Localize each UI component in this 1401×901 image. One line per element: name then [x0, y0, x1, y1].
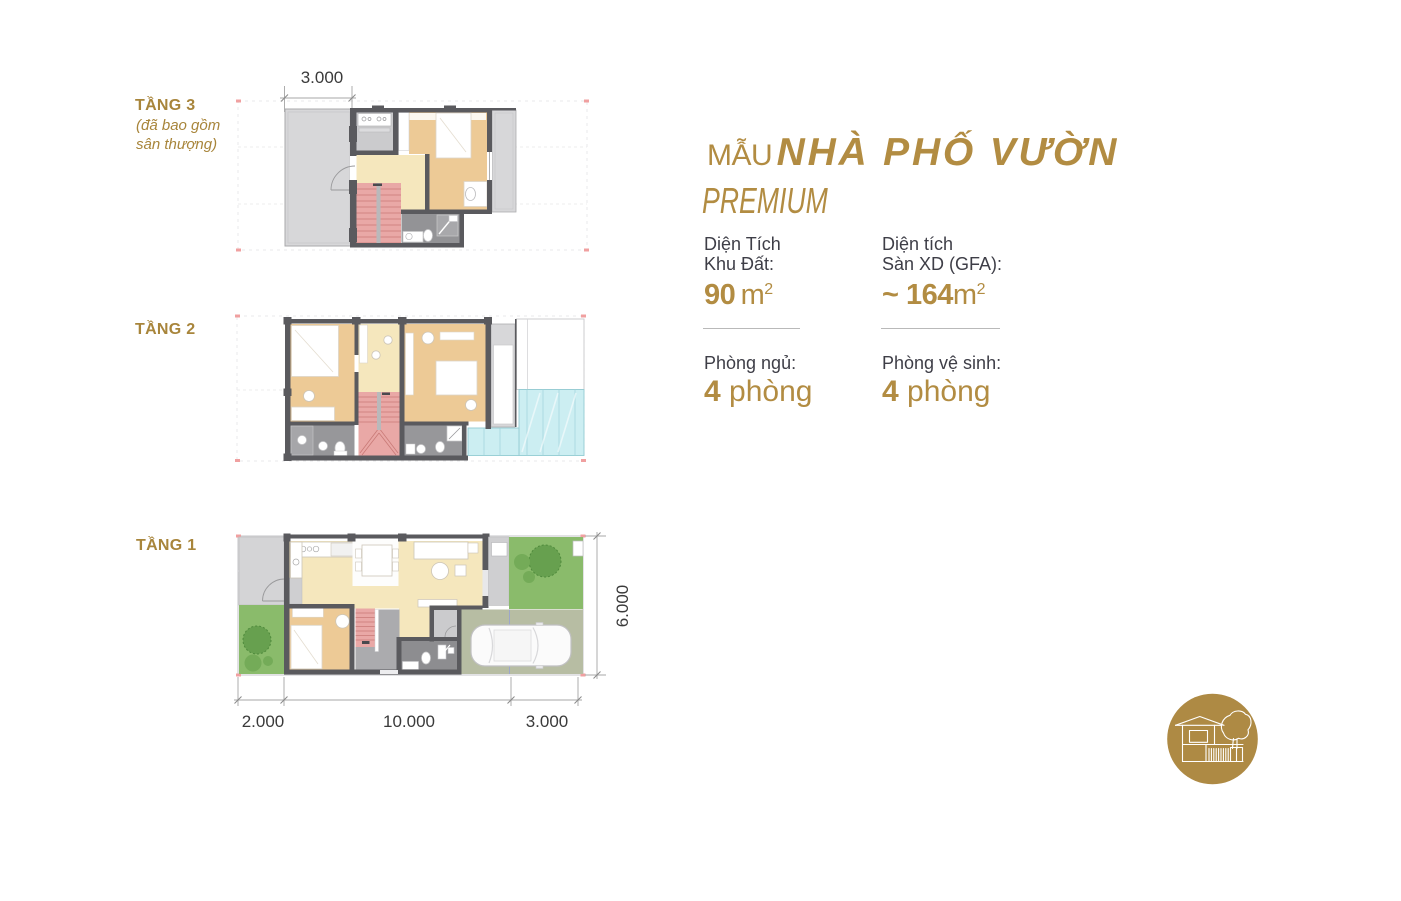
svg-text:10.000: 10.000 — [383, 712, 435, 731]
svg-text:6.000: 6.000 — [613, 585, 632, 628]
svg-text:3.000: 3.000 — [526, 712, 569, 731]
svg-text:2.000: 2.000 — [242, 712, 285, 731]
svg-text:3.000: 3.000 — [301, 68, 344, 87]
